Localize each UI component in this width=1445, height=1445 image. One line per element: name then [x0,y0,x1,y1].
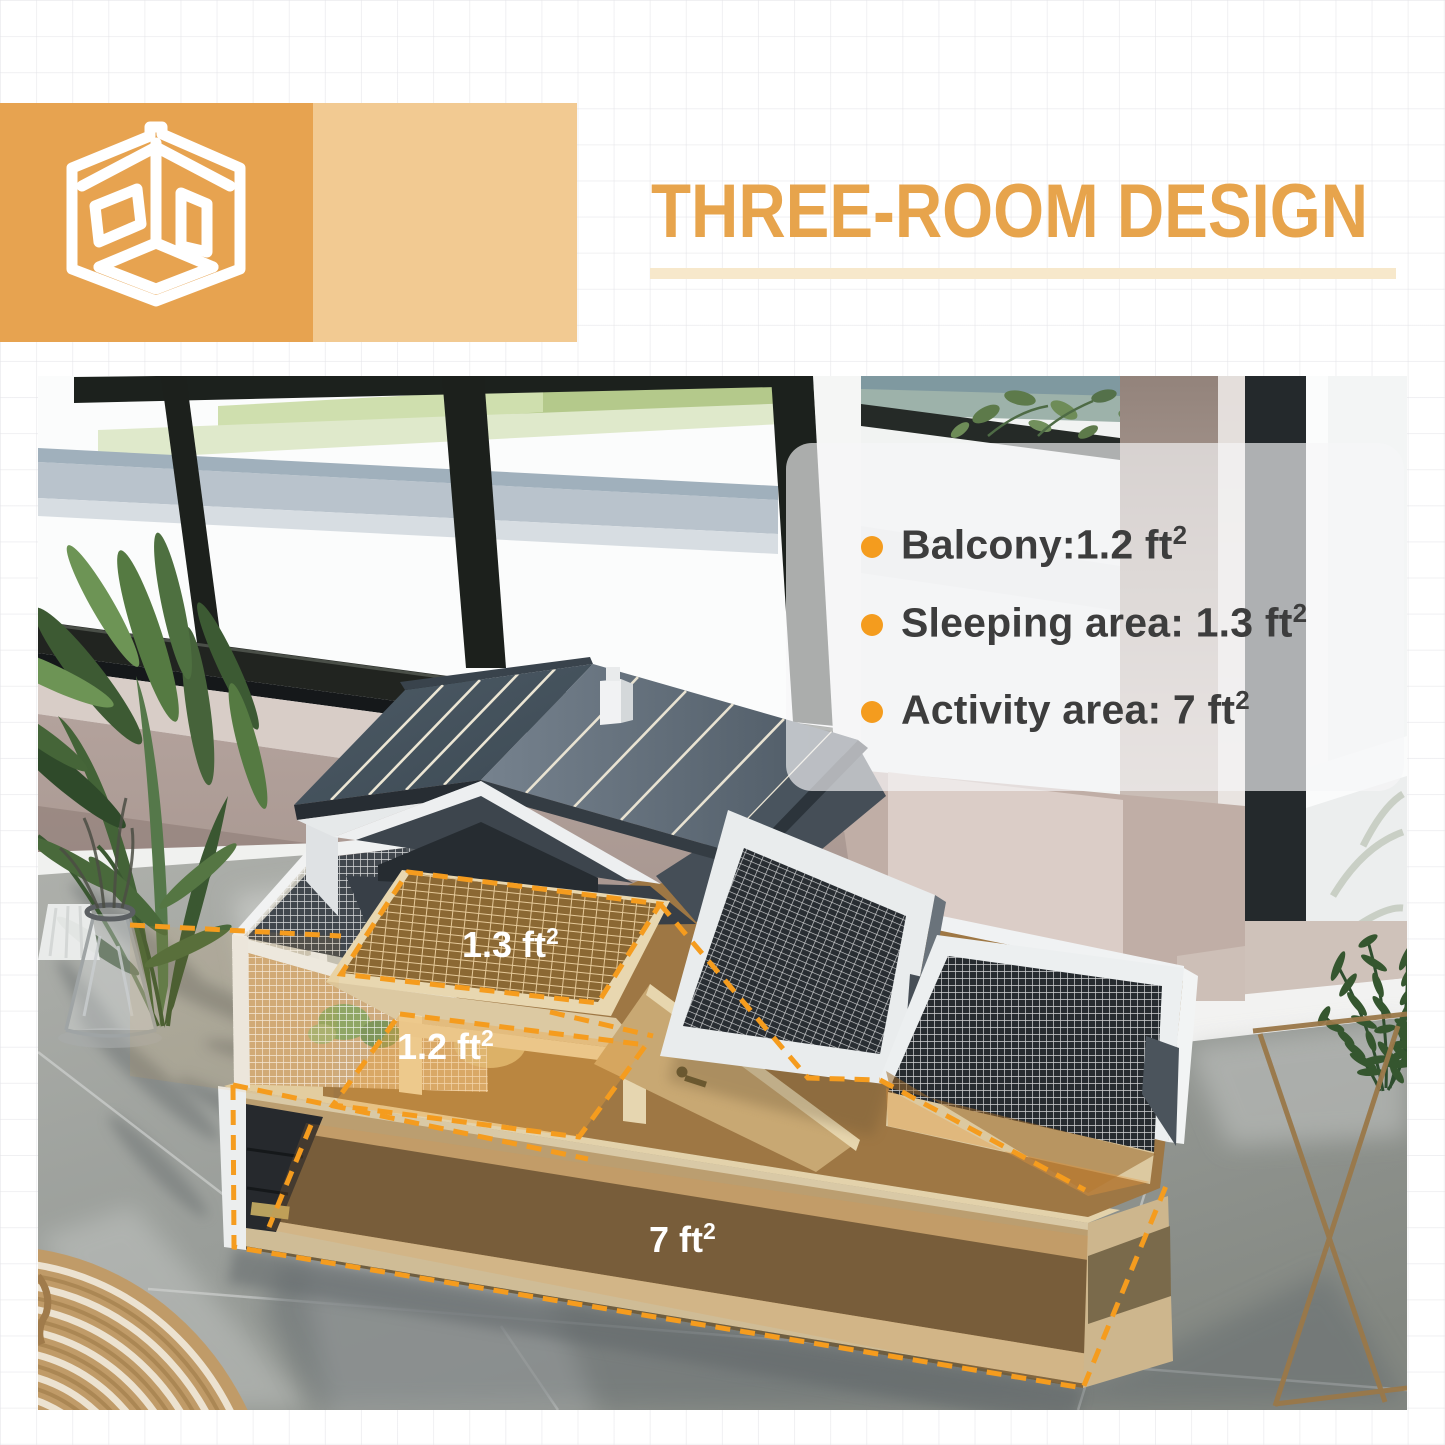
svg-text:1.2 ft2: 1.2 ft2 [397,1025,494,1067]
svg-text:1.3 ft2: 1.3 ft2 [462,923,559,965]
